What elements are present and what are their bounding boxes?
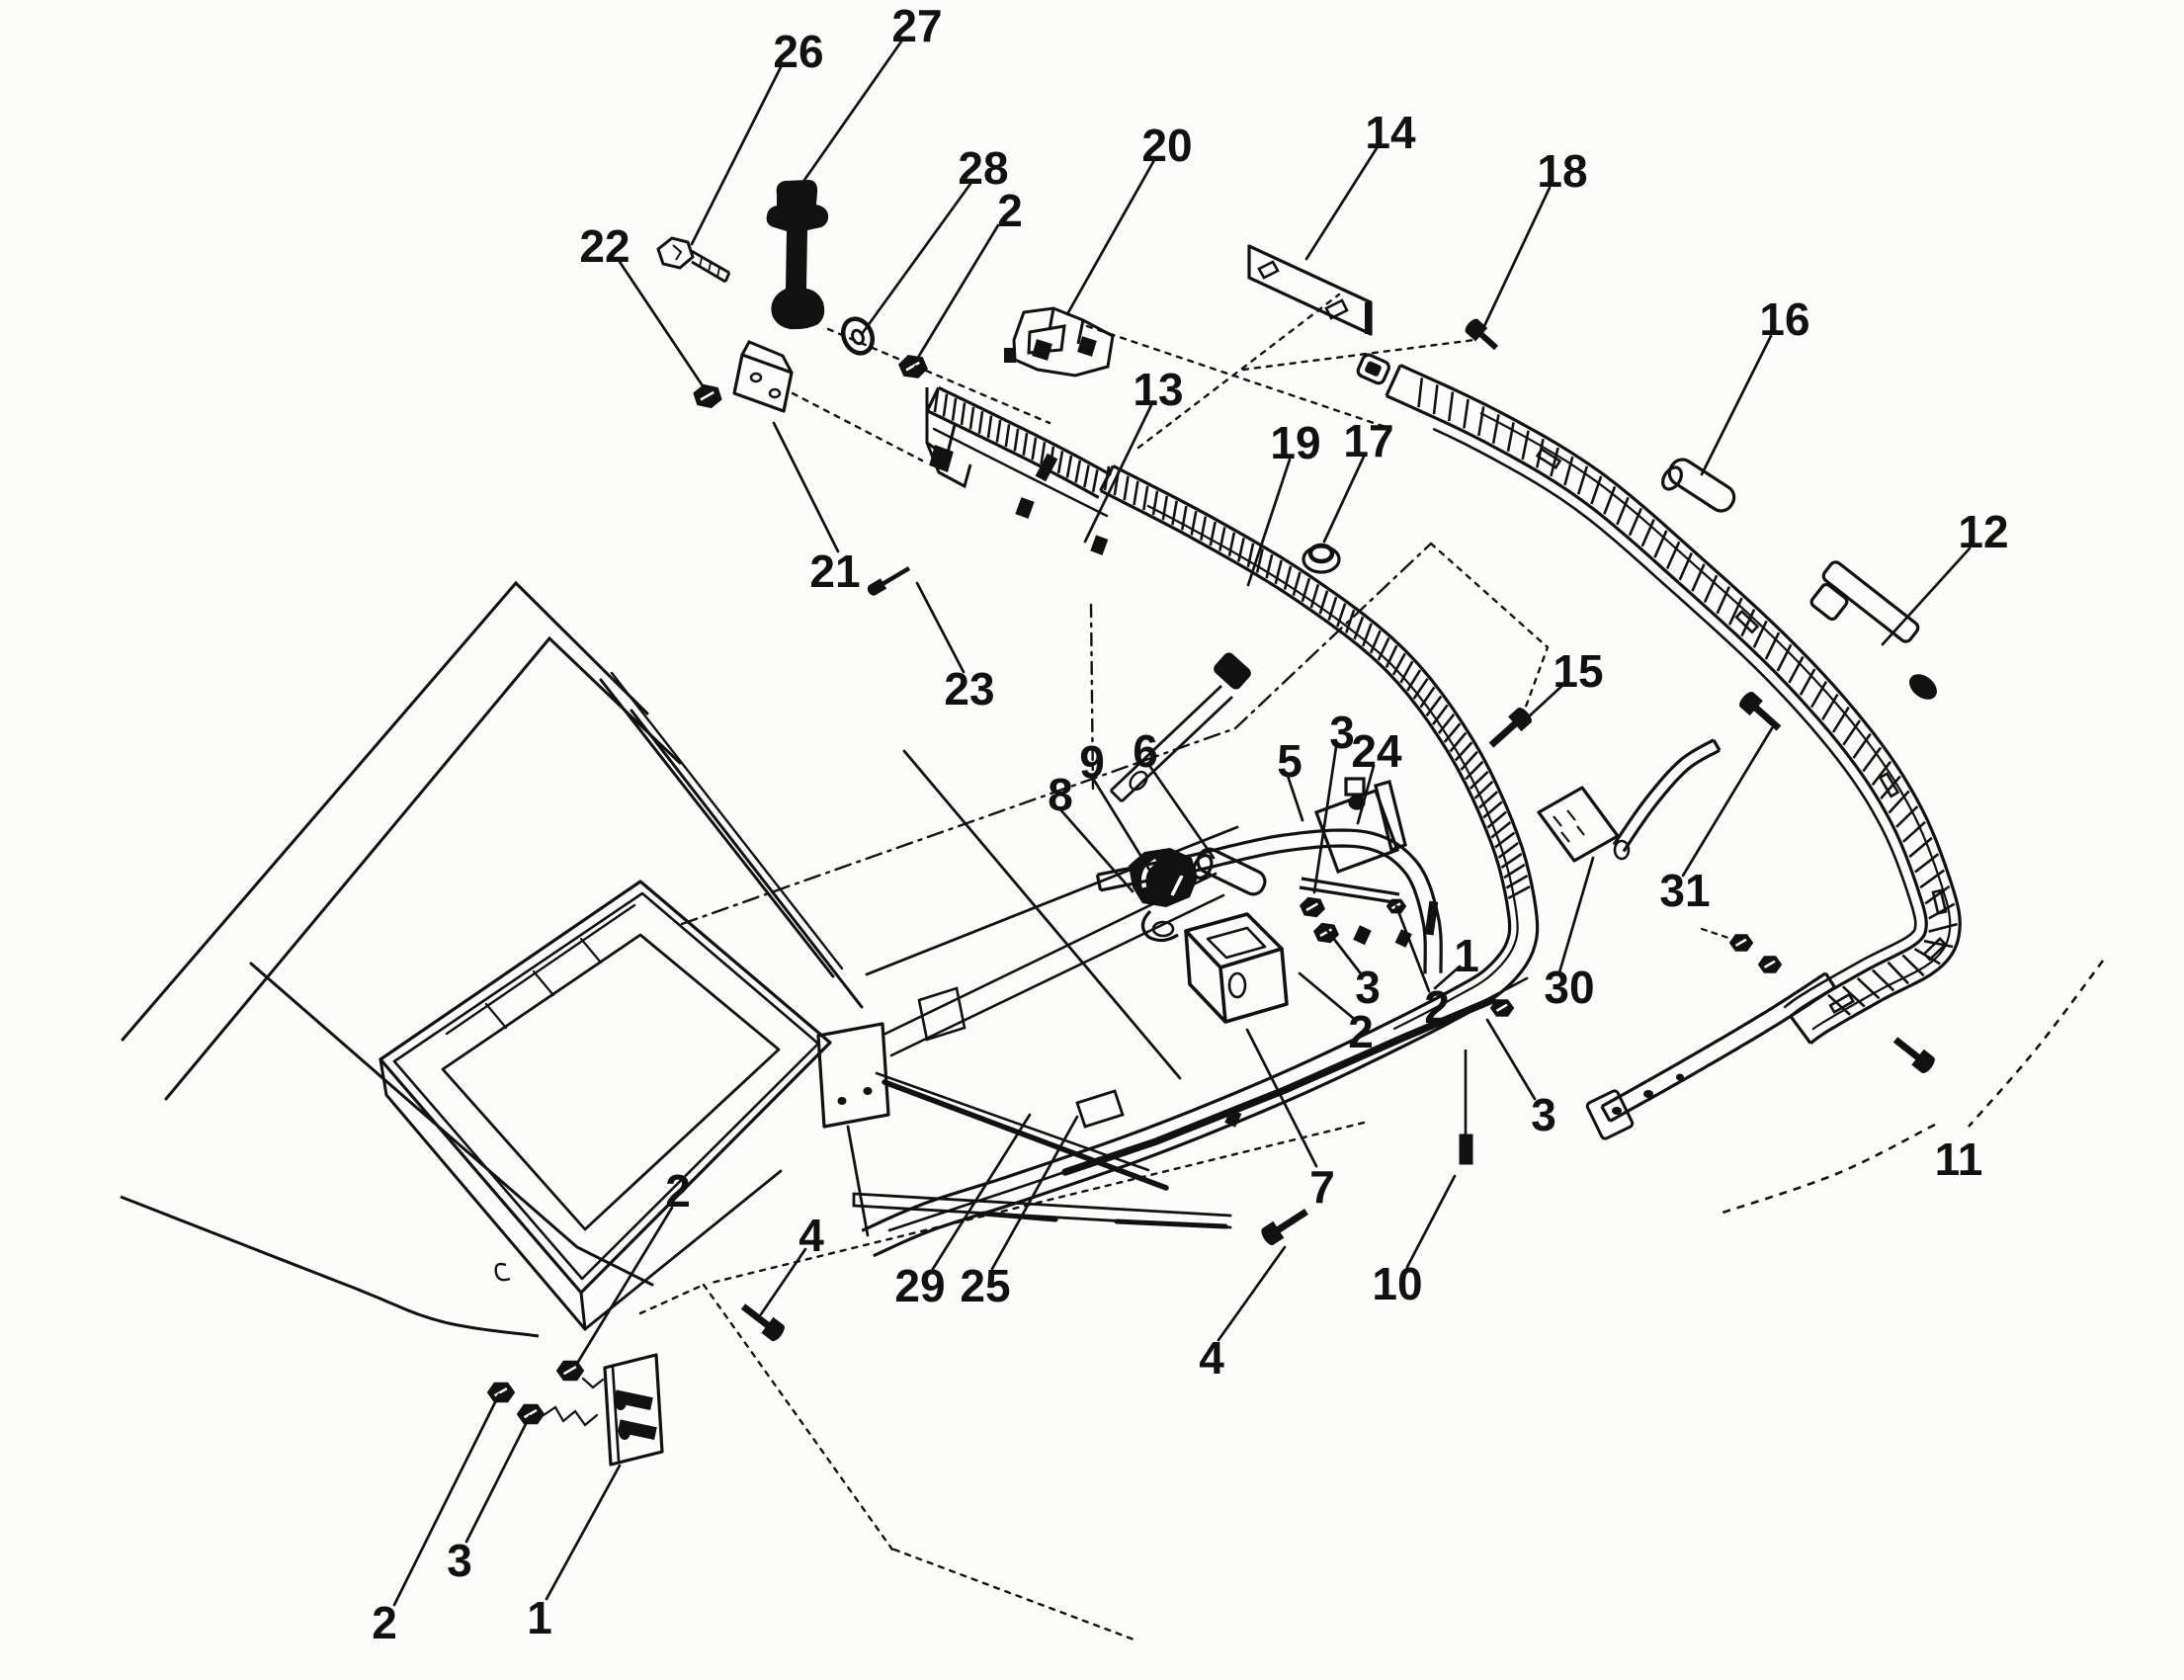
svg-text:2: 2 bbox=[997, 185, 1023, 236]
svg-text:2: 2 bbox=[1424, 981, 1450, 1033]
svg-text:2: 2 bbox=[372, 1597, 397, 1648]
svg-text:6: 6 bbox=[1133, 725, 1158, 777]
svg-text:13: 13 bbox=[1133, 364, 1183, 415]
svg-text:25: 25 bbox=[960, 1260, 1010, 1311]
svg-text:2: 2 bbox=[665, 1165, 691, 1217]
svg-text:3: 3 bbox=[447, 1535, 472, 1586]
svg-text:1: 1 bbox=[1454, 930, 1479, 981]
svg-text:3: 3 bbox=[1531, 1089, 1556, 1140]
svg-text:11: 11 bbox=[1935, 1134, 1983, 1185]
svg-text:9: 9 bbox=[1079, 736, 1105, 788]
svg-text:22: 22 bbox=[579, 220, 630, 272]
svg-text:15: 15 bbox=[1553, 645, 1603, 697]
svg-text:30: 30 bbox=[1544, 962, 1594, 1013]
svg-text:18: 18 bbox=[1537, 145, 1587, 197]
svg-text:23: 23 bbox=[944, 663, 994, 714]
svg-text:8: 8 bbox=[1048, 769, 1073, 820]
svg-text:24: 24 bbox=[1351, 725, 1402, 777]
svg-text:17: 17 bbox=[1343, 415, 1393, 466]
svg-text:27: 27 bbox=[891, 0, 942, 51]
svg-text:20: 20 bbox=[1141, 120, 1192, 171]
svg-text:12: 12 bbox=[1958, 506, 2008, 557]
svg-text:21: 21 bbox=[809, 546, 860, 597]
svg-text:7: 7 bbox=[1309, 1161, 1335, 1213]
svg-text:14: 14 bbox=[1365, 107, 1416, 158]
svg-text:1: 1 bbox=[527, 1592, 552, 1643]
svg-text:16: 16 bbox=[1759, 294, 1809, 345]
svg-text:31: 31 bbox=[1659, 865, 1710, 916]
svg-text:4: 4 bbox=[798, 1210, 824, 1261]
svg-text:29: 29 bbox=[894, 1260, 945, 1311]
svg-text:19: 19 bbox=[1270, 417, 1320, 468]
svg-text:2: 2 bbox=[1348, 1006, 1374, 1057]
svg-text:26: 26 bbox=[773, 26, 823, 77]
svg-text:10: 10 bbox=[1372, 1258, 1422, 1309]
svg-text:4: 4 bbox=[1199, 1332, 1224, 1384]
svg-text:5: 5 bbox=[1277, 735, 1302, 787]
